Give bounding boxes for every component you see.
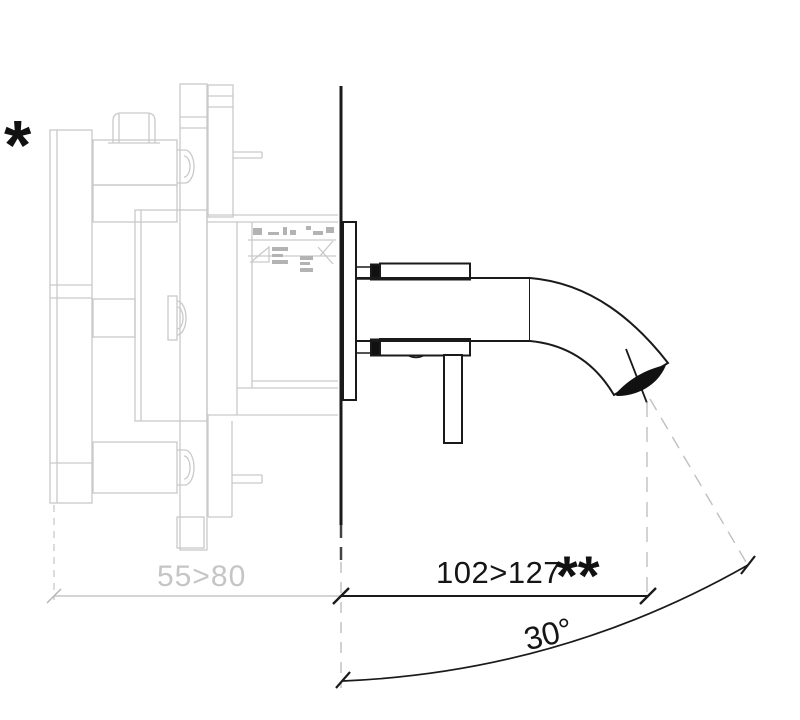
ghost-detail-marks	[253, 226, 334, 272]
projection-guides	[647, 399, 746, 592]
ghost-middle-port	[93, 299, 135, 337]
angle-guide	[650, 399, 746, 562]
ghost-mounting-plate	[180, 84, 207, 550]
ghost-upper-pipe	[208, 85, 233, 217]
ghost-cartridge-box	[135, 210, 207, 421]
ghost-bottom-port	[93, 442, 177, 493]
concealed-valve-body-ghost	[50, 84, 338, 600]
drawing-linework	[0, 0, 800, 720]
ghost-near-wall-housing	[207, 215, 338, 415]
spout-reach-label: 102>127	[436, 557, 561, 588]
ghost-top-port	[93, 140, 177, 185]
dimension-spout-reach	[333, 588, 656, 604]
wall-plate	[343, 222, 356, 400]
footnote-marker: *	[4, 110, 31, 180]
embed-depth-label: 55>80	[157, 562, 246, 592]
faucet-trim	[343, 222, 668, 443]
arc-tick-right	[741, 556, 755, 574]
ghost-backplate	[50, 130, 92, 503]
spout-body	[356, 278, 668, 403]
spout-reach-footnote-marker: **	[556, 548, 600, 604]
lever-handle	[408, 355, 462, 443]
faucet-technical-drawing: * 55>80 102>127 ** 30°	[0, 0, 800, 720]
